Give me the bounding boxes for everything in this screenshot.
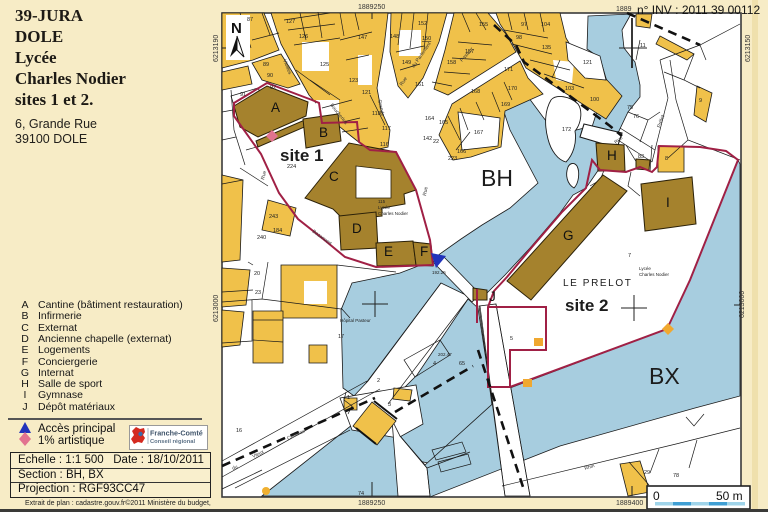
svg-text:23: 23 <box>255 290 261 296</box>
svg-text:240: 240 <box>257 235 266 241</box>
svg-text:site 2: site 2 <box>565 296 608 315</box>
svg-text:169: 169 <box>501 102 510 108</box>
svg-text:50 m: 50 m <box>716 489 743 503</box>
svg-text:172: 172 <box>562 127 571 133</box>
svg-text:75: 75 <box>627 105 633 111</box>
svg-text:6213000: 6213000 <box>739 291 746 318</box>
svg-text:Lycée: Lycée <box>639 266 651 271</box>
svg-text:116: 116 <box>380 142 389 148</box>
svg-text:98: 98 <box>516 35 522 41</box>
svg-text:184: 184 <box>273 228 282 234</box>
svg-text:161: 161 <box>415 82 424 88</box>
svg-text:87: 87 <box>247 17 253 23</box>
svg-text:123: 123 <box>349 78 358 84</box>
svg-text:224: 224 <box>287 164 296 170</box>
svg-text:17: 17 <box>338 334 344 340</box>
svg-text:142: 142 <box>423 136 432 142</box>
svg-text:97: 97 <box>521 22 527 28</box>
svg-text:16: 16 <box>236 428 242 434</box>
svg-text:1889250: 1889250 <box>358 500 385 507</box>
svg-text:170: 170 <box>508 86 517 92</box>
svg-text:Lycée: Lycée <box>378 205 390 210</box>
svg-text:223: 223 <box>448 156 457 162</box>
svg-text:149: 149 <box>402 60 411 66</box>
svg-text:9: 9 <box>699 98 702 104</box>
svg-text:7: 7 <box>628 253 631 259</box>
svg-text:8: 8 <box>665 156 668 162</box>
svg-text:83: 83 <box>638 154 644 160</box>
svg-text:J: J <box>489 289 496 304</box>
svg-text:92: 92 <box>270 85 276 91</box>
svg-text:243: 243 <box>269 214 278 220</box>
svg-text:Charles Nodier: Charles Nodier <box>378 211 409 216</box>
svg-text:29: 29 <box>644 470 650 476</box>
svg-text:171: 171 <box>504 67 513 73</box>
svg-text:BH: BH <box>481 165 513 191</box>
svg-text:A: A <box>271 100 280 115</box>
svg-text:164: 164 <box>425 116 434 122</box>
svg-text:I: I <box>666 195 670 210</box>
svg-text:192.25: 192.25 <box>432 270 446 275</box>
svg-text:152: 152 <box>418 21 427 27</box>
svg-text:22: 22 <box>433 139 439 145</box>
svg-text:BX: BX <box>649 363 680 389</box>
svg-text:Hôpital Pasteur: Hôpital Pasteur <box>340 318 371 323</box>
svg-text:158: 158 <box>447 60 456 66</box>
svg-text:126: 126 <box>299 34 308 40</box>
svg-text:4: 4 <box>433 361 436 367</box>
svg-text:3: 3 <box>388 402 391 408</box>
svg-text:167: 167 <box>474 130 483 136</box>
svg-text:E: E <box>384 244 393 259</box>
svg-text:150: 150 <box>422 36 431 42</box>
svg-text:90: 90 <box>267 73 273 79</box>
svg-text:1889400: 1889400 <box>616 500 643 507</box>
svg-text:1: 1 <box>347 395 350 401</box>
svg-text:Charles Nodier: Charles Nodier <box>639 272 670 277</box>
svg-text:125: 125 <box>320 62 329 68</box>
svg-text:76: 76 <box>633 114 639 120</box>
svg-text:135: 135 <box>542 45 551 51</box>
svg-text:0: 0 <box>653 489 660 503</box>
svg-text:74: 74 <box>358 491 364 497</box>
svg-text:D: D <box>352 221 362 236</box>
svg-text:121: 121 <box>362 90 371 96</box>
svg-text:165: 165 <box>439 120 448 126</box>
svg-text:2: 2 <box>377 378 380 384</box>
svg-text:6213150: 6213150 <box>745 35 752 62</box>
svg-text:166: 166 <box>457 149 466 155</box>
svg-text:Franche-Comté: Franche-Comté <box>150 429 203 438</box>
svg-text:11: 11 <box>640 43 646 49</box>
svg-text:5: 5 <box>510 336 513 342</box>
svg-text:202.47: 202.47 <box>438 352 452 357</box>
svg-text:site 1: site 1 <box>280 146 323 165</box>
svg-text:20: 20 <box>254 271 260 277</box>
svg-text:C: C <box>329 169 339 184</box>
svg-text:91: 91 <box>240 92 246 98</box>
svg-text:B: B <box>319 125 328 140</box>
svg-text:H: H <box>607 148 617 163</box>
svg-text:103: 103 <box>565 86 574 92</box>
svg-text:147: 147 <box>358 35 367 41</box>
svg-text:104: 104 <box>541 22 550 28</box>
svg-text:65: 65 <box>459 361 465 367</box>
svg-text:127: 127 <box>286 19 295 25</box>
svg-text:1889: 1889 <box>616 6 632 13</box>
svg-text:LE PRELOT: LE PRELOT <box>563 278 632 289</box>
svg-text:78: 78 <box>673 473 679 479</box>
svg-text:1889250: 1889250 <box>358 4 385 11</box>
svg-text:100: 100 <box>590 97 599 103</box>
svg-text:115: 115 <box>378 199 386 204</box>
svg-text:Conseil régional: Conseil régional <box>150 439 195 445</box>
svg-text:168: 168 <box>471 89 480 95</box>
svg-text:117: 117 <box>382 126 391 132</box>
svg-text:148: 148 <box>390 34 399 40</box>
svg-text:89: 89 <box>263 62 269 68</box>
svg-text:N: N <box>231 20 242 37</box>
svg-text:F: F <box>420 244 428 259</box>
svg-text:G: G <box>563 228 574 243</box>
svg-text:121: 121 <box>583 60 592 66</box>
svg-text:155: 155 <box>479 22 488 28</box>
